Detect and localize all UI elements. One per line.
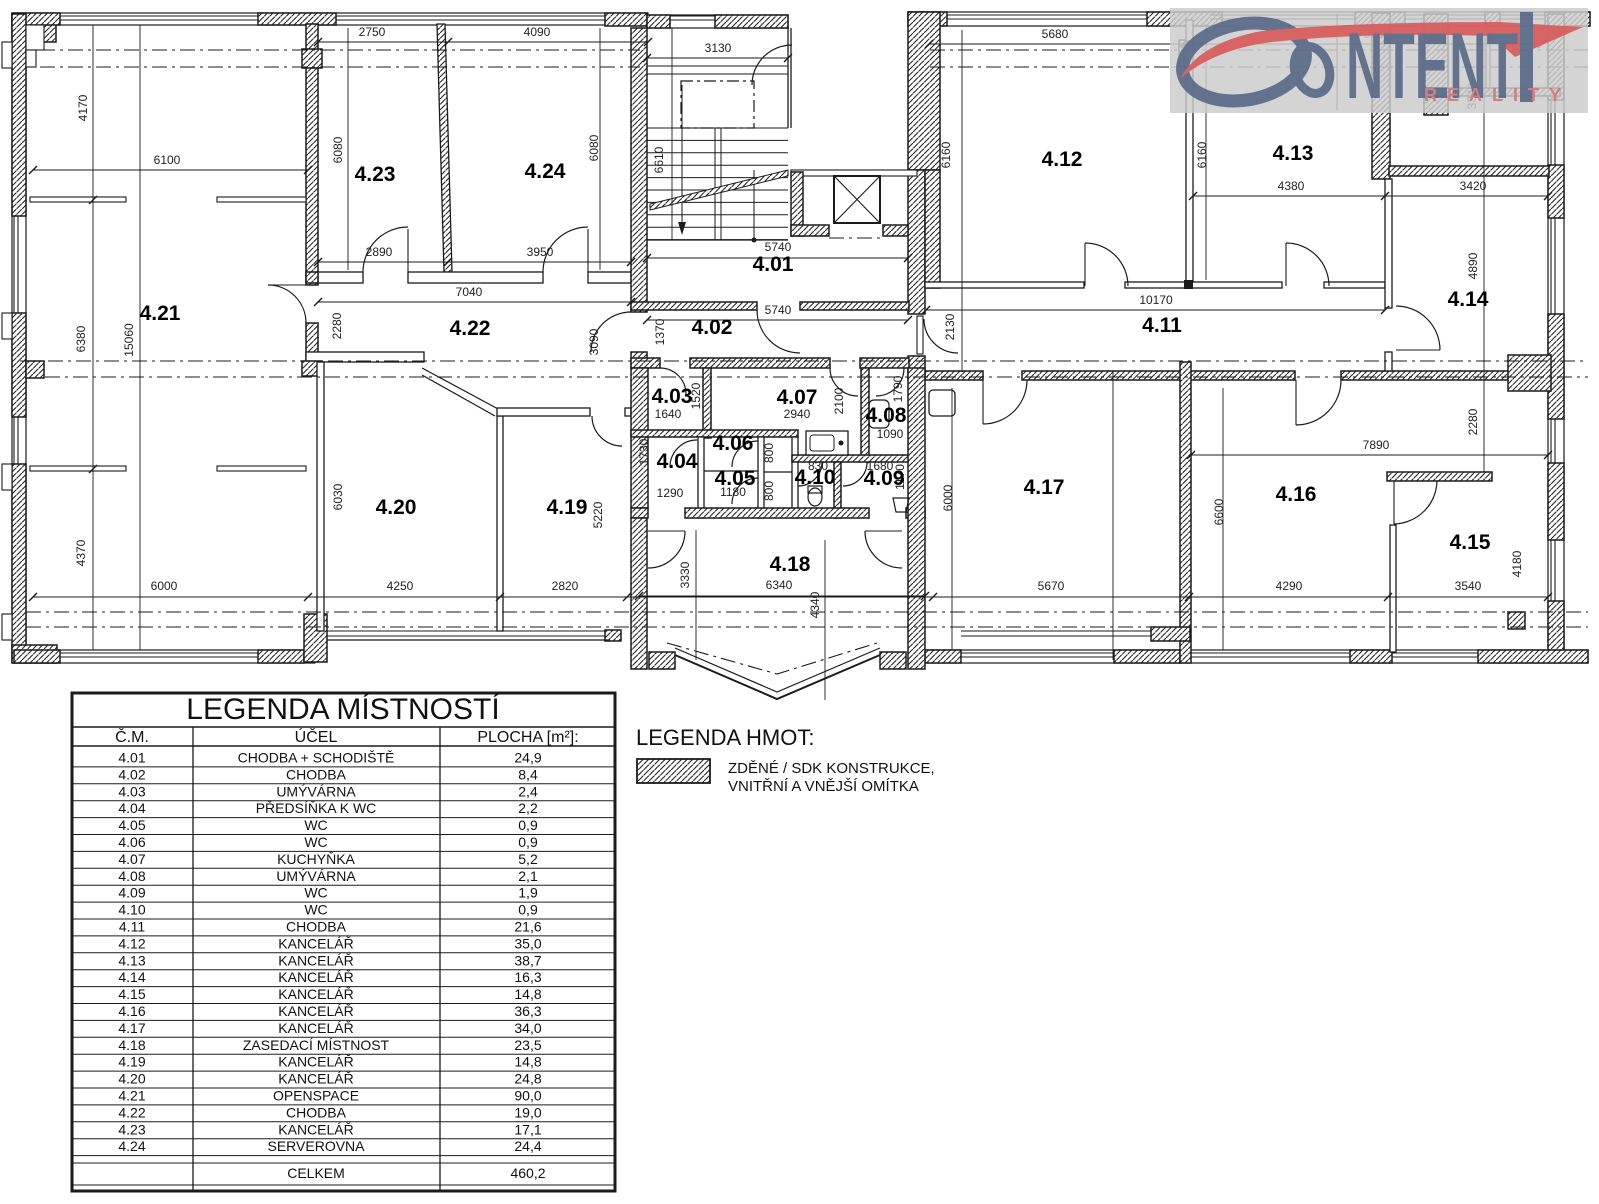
svg-text:KUCHYŇKA: KUCHYŇKA xyxy=(277,851,355,867)
svg-text:4.14: 4.14 xyxy=(118,969,145,985)
svg-text:8,4: 8,4 xyxy=(518,766,538,782)
svg-text:4.13: 4.13 xyxy=(118,952,145,968)
svg-text:KANCELÁŘ: KANCELÁŘ xyxy=(278,935,353,951)
svg-text:6000: 6000 xyxy=(151,579,178,593)
svg-text:1370: 1370 xyxy=(653,318,667,345)
svg-text:KANCELÁŘ: KANCELÁŘ xyxy=(278,1054,353,1070)
svg-text:6340: 6340 xyxy=(766,578,793,592)
svg-text:4290: 4290 xyxy=(1276,579,1303,593)
svg-text:4.10: 4.10 xyxy=(118,902,145,918)
svg-text:4.07: 4.07 xyxy=(777,386,818,409)
svg-text:0,9: 0,9 xyxy=(518,817,538,833)
svg-text:19,0: 19,0 xyxy=(514,1104,541,1120)
svg-text:Č.M.: Č.M. xyxy=(115,727,149,746)
svg-text:ÚČEL: ÚČEL xyxy=(295,727,338,746)
svg-text:2280: 2280 xyxy=(1466,408,1480,435)
svg-text:KANCELÁŘ: KANCELÁŘ xyxy=(278,1020,353,1036)
svg-text:4250: 4250 xyxy=(387,579,414,593)
svg-text:16,3: 16,3 xyxy=(514,969,541,985)
svg-text:CELKEM: CELKEM xyxy=(287,1165,345,1181)
svg-text:800: 800 xyxy=(762,481,776,501)
svg-text:1290: 1290 xyxy=(657,486,684,500)
svg-text:4.15: 4.15 xyxy=(1450,531,1491,554)
svg-text:ZASEDACÍ MÍSTNOST: ZASEDACÍ MÍSTNOST xyxy=(243,1037,390,1053)
svg-text:UMÝVÁRNA: UMÝVÁRNA xyxy=(276,868,356,884)
svg-text:24,8: 24,8 xyxy=(514,1071,541,1087)
svg-text:4.12: 4.12 xyxy=(1042,148,1083,171)
svg-text:VNITŘNÍ A VNĚJŠÍ OMÍTKA: VNITŘNÍ A VNĚJŠÍ OMÍTKA xyxy=(728,778,919,795)
svg-text:4.15: 4.15 xyxy=(118,986,145,1002)
svg-text:23,5: 23,5 xyxy=(514,1037,541,1053)
svg-text:WC: WC xyxy=(304,902,327,918)
svg-text:3130: 3130 xyxy=(705,41,732,55)
svg-text:OPENSPACE: OPENSPACE xyxy=(273,1088,359,1104)
svg-text:4.07: 4.07 xyxy=(118,851,145,867)
svg-text:4.11: 4.11 xyxy=(1142,314,1182,337)
svg-text:6080: 6080 xyxy=(331,136,345,163)
svg-text:KANCELÁŘ: KANCELÁŘ xyxy=(278,969,353,985)
svg-text:4340: 4340 xyxy=(808,591,822,618)
svg-text:4.20: 4.20 xyxy=(376,496,417,519)
svg-text:4.13: 4.13 xyxy=(1273,142,1314,165)
svg-text:3950: 3950 xyxy=(527,245,554,259)
svg-text:3420: 3420 xyxy=(1460,179,1487,193)
svg-text:LEGENDA HMOT:: LEGENDA HMOT: xyxy=(636,725,814,750)
svg-text:4.06: 4.06 xyxy=(713,432,754,455)
svg-text:4.08: 4.08 xyxy=(866,404,907,427)
svg-text:460,2: 460,2 xyxy=(510,1165,545,1181)
svg-text:4.01: 4.01 xyxy=(753,253,794,276)
svg-text:4370: 4370 xyxy=(74,539,88,566)
svg-text:6160: 6160 xyxy=(939,141,953,168)
svg-text:4.09: 4.09 xyxy=(864,467,905,490)
svg-text:4170: 4170 xyxy=(76,94,90,121)
svg-text:6030: 6030 xyxy=(331,483,345,510)
svg-text:0,9: 0,9 xyxy=(518,902,538,918)
svg-text:4.18: 4.18 xyxy=(118,1037,145,1053)
svg-text:4.19: 4.19 xyxy=(547,496,588,519)
svg-text:3090: 3090 xyxy=(587,328,601,355)
svg-text:4380: 4380 xyxy=(1278,179,1305,193)
svg-text:10170: 10170 xyxy=(1139,293,1173,307)
svg-text:4.12: 4.12 xyxy=(118,935,145,951)
svg-text:LEGENDA MÍSTNOSTÍ: LEGENDA MÍSTNOSTÍ xyxy=(186,693,500,726)
svg-text:4.05: 4.05 xyxy=(118,817,145,833)
svg-text:38,7: 38,7 xyxy=(514,952,541,968)
svg-text:4.22: 4.22 xyxy=(450,317,491,340)
svg-text:1640: 1640 xyxy=(655,407,682,421)
svg-text:4.18: 4.18 xyxy=(770,553,811,576)
svg-text:15060: 15060 xyxy=(122,323,136,357)
svg-text:4180: 4180 xyxy=(1510,550,1524,577)
svg-text:4.17: 4.17 xyxy=(118,1020,145,1036)
svg-text:WC: WC xyxy=(304,817,327,833)
svg-text:4890: 4890 xyxy=(1466,252,1480,279)
svg-text:7890: 7890 xyxy=(1363,438,1390,452)
svg-text:1,9: 1,9 xyxy=(518,885,538,901)
svg-text:KANCELÁŘ: KANCELÁŘ xyxy=(278,1003,353,1019)
svg-text:5680: 5680 xyxy=(1042,27,1069,41)
svg-text:1790: 1790 xyxy=(891,375,905,402)
svg-text:21,6: 21,6 xyxy=(514,919,541,935)
svg-text:5670: 5670 xyxy=(1038,579,1065,593)
svg-text:4.02: 4.02 xyxy=(692,316,733,339)
svg-text:4.06: 4.06 xyxy=(118,834,145,850)
svg-text:2890: 2890 xyxy=(366,245,393,259)
svg-text:4.22: 4.22 xyxy=(118,1104,145,1120)
svg-text:4.17: 4.17 xyxy=(1024,476,1065,499)
svg-text:KANCELÁŘ: KANCELÁŘ xyxy=(278,952,353,968)
svg-text:4.16: 4.16 xyxy=(1276,483,1317,506)
svg-text:PLOCHA [m²]:: PLOCHA [m²]: xyxy=(477,729,578,746)
svg-text:4.10: 4.10 xyxy=(795,466,836,489)
svg-text:24,9: 24,9 xyxy=(514,750,541,766)
svg-text:4.16: 4.16 xyxy=(118,1003,145,1019)
svg-text:5740: 5740 xyxy=(765,240,792,254)
svg-text:1730: 1730 xyxy=(637,438,651,465)
svg-text:4.04: 4.04 xyxy=(118,800,145,816)
svg-text:6100: 6100 xyxy=(154,153,181,167)
svg-text:2280: 2280 xyxy=(330,312,344,339)
svg-text:4.20: 4.20 xyxy=(118,1071,145,1087)
svg-text:14,8: 14,8 xyxy=(514,1054,541,1070)
svg-text:2130: 2130 xyxy=(943,313,957,340)
svg-text:7040: 7040 xyxy=(456,285,483,299)
svg-text:6000: 6000 xyxy=(941,484,955,511)
svg-text:6610: 6610 xyxy=(652,146,666,173)
svg-text:ZDĚNÉ / SDK KONSTRUKCE,: ZDĚNÉ / SDK KONSTRUKCE, xyxy=(728,760,935,777)
svg-text:4.24: 4.24 xyxy=(118,1138,145,1154)
svg-text:4.08: 4.08 xyxy=(118,868,145,884)
svg-text:4.01: 4.01 xyxy=(118,750,145,766)
svg-text:2940: 2940 xyxy=(784,407,811,421)
svg-text:4.03: 4.03 xyxy=(118,783,145,799)
svg-text:UMÝVÁRNA: UMÝVÁRNA xyxy=(276,783,356,799)
svg-text:2820: 2820 xyxy=(552,579,579,593)
svg-text:4.09: 4.09 xyxy=(118,885,145,901)
svg-text:3540: 3540 xyxy=(1455,579,1482,593)
svg-text:KANCELÁŘ: KANCELÁŘ xyxy=(278,986,353,1002)
svg-text:REALITY: REALITY xyxy=(1424,85,1571,105)
svg-text:WC: WC xyxy=(304,885,327,901)
svg-text:CHODBA + SCHODIŠTĚ: CHODBA + SCHODIŠTĚ xyxy=(238,750,395,766)
svg-text:14,8: 14,8 xyxy=(514,986,541,1002)
svg-text:2,4: 2,4 xyxy=(518,783,538,799)
svg-text:2,2: 2,2 xyxy=(518,800,538,816)
svg-text:4.19: 4.19 xyxy=(118,1054,145,1070)
svg-text:17,1: 17,1 xyxy=(514,1121,541,1137)
svg-text:4.02: 4.02 xyxy=(118,766,145,782)
svg-text:6600: 6600 xyxy=(1212,498,1226,525)
svg-text:5220: 5220 xyxy=(591,501,605,528)
svg-text:4.24: 4.24 xyxy=(525,160,566,183)
svg-text:WC: WC xyxy=(304,834,327,850)
svg-text:90,0: 90,0 xyxy=(514,1088,541,1104)
svg-text:5,2: 5,2 xyxy=(518,851,538,867)
svg-text:34,0: 34,0 xyxy=(514,1020,541,1036)
svg-text:800: 800 xyxy=(762,443,776,463)
svg-text:4.05: 4.05 xyxy=(715,467,756,490)
svg-text:6380: 6380 xyxy=(74,325,88,352)
svg-text:4.03: 4.03 xyxy=(652,385,693,408)
svg-text:35,0: 35,0 xyxy=(514,935,541,951)
svg-text:4.14: 4.14 xyxy=(1448,288,1489,311)
svg-text:KANCELÁŘ: KANCELÁŘ xyxy=(278,1071,353,1087)
svg-text:4.21: 4.21 xyxy=(140,302,181,325)
svg-text:36,3: 36,3 xyxy=(514,1003,541,1019)
svg-text:3330: 3330 xyxy=(678,561,692,588)
svg-text:1090: 1090 xyxy=(877,427,904,441)
svg-text:4.23: 4.23 xyxy=(355,163,396,186)
svg-text:PŘEDSÍŇKA K WC: PŘEDSÍŇKA K WC xyxy=(256,800,377,816)
svg-text:2100: 2100 xyxy=(832,387,846,414)
svg-text:4.21: 4.21 xyxy=(118,1088,145,1104)
svg-text:24,4: 24,4 xyxy=(514,1138,541,1154)
svg-text:5740: 5740 xyxy=(765,303,792,317)
svg-text:4.11: 4.11 xyxy=(119,919,145,935)
svg-text:2750: 2750 xyxy=(359,25,386,39)
svg-text:6080: 6080 xyxy=(587,134,601,161)
svg-text:6160: 6160 xyxy=(1195,141,1209,168)
svg-text:4090: 4090 xyxy=(524,25,551,39)
svg-text:2,1: 2,1 xyxy=(518,868,538,884)
svg-text:4.23: 4.23 xyxy=(118,1121,145,1137)
svg-text:0,9: 0,9 xyxy=(518,834,538,850)
svg-text:CHODBA: CHODBA xyxy=(286,766,347,782)
svg-text:CHODBA: CHODBA xyxy=(286,1104,347,1120)
svg-text:CHODBA: CHODBA xyxy=(286,919,347,935)
svg-text:SERVEROVNA: SERVEROVNA xyxy=(268,1138,366,1154)
svg-text:4.04: 4.04 xyxy=(657,450,698,473)
svg-text:KANCELÁŘ: KANCELÁŘ xyxy=(278,1121,353,1137)
